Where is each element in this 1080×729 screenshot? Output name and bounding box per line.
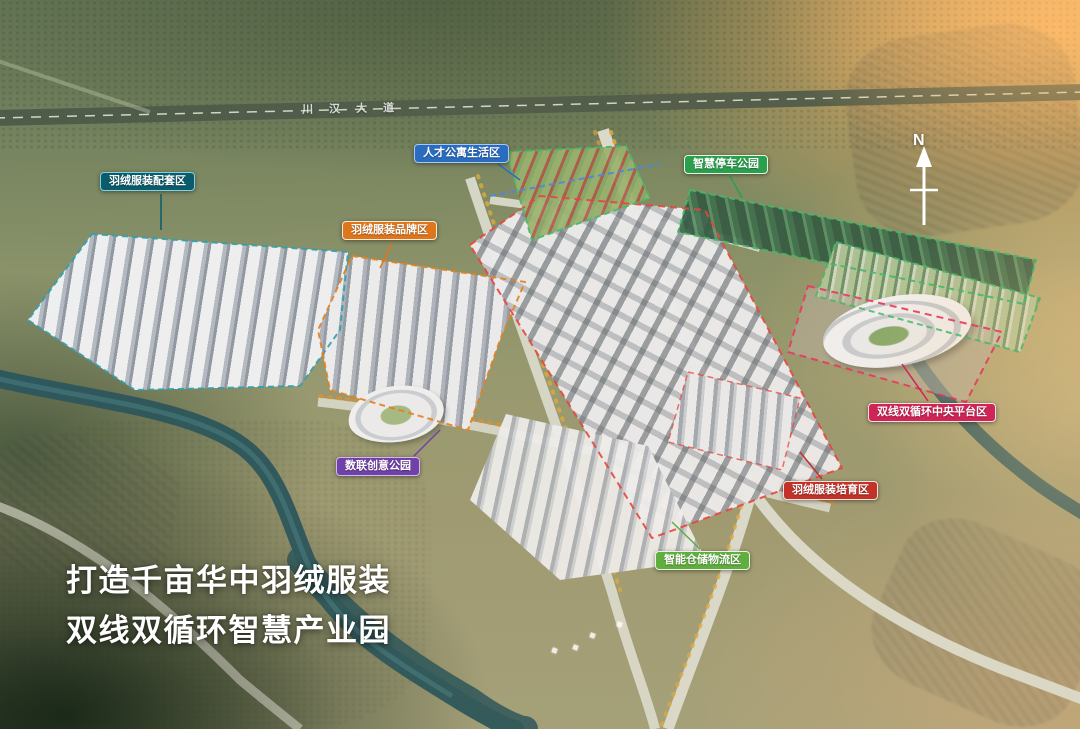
leader-platform [902,364,928,401]
zone-label-smart-parking: 智慧停车公园 [684,155,768,174]
boundary-platform [788,286,1002,402]
main-title: 打造千亩华中羽绒服装 双线双循环智慧产业园 [66,556,391,656]
boundary-right-green [816,242,1040,352]
zone-label-data-creative: 数联创意公园 [336,457,420,476]
north-arrow-icon [910,146,938,225]
title-line-1: 打造千亩华中羽绒服装 [66,556,391,606]
zone-boundaries [28,146,1040,538]
leader-creative [414,430,440,456]
title-line-2: 双线双循环智慧产业园 [66,606,391,656]
boundary-talent-blue-line [490,164,660,196]
zone-label-brand: 羽绒服装品牌区 [342,221,437,240]
leader-brand [380,243,392,268]
zone-label-central-platform: 双线双循环中央平台区 [868,403,996,422]
boundary-incubation [668,372,800,470]
zone-label-talent-life: 人才公寓生活区 [414,144,509,163]
boundary-support [28,234,348,390]
zone-label-incubation: 羽绒服装培育区 [783,481,878,500]
leader-talent [498,164,520,180]
zone-label-support: 羽绒服装配套区 [100,172,195,191]
boundary-talent [506,146,650,240]
zone-label-logistics: 智能仓储物流区 [655,551,750,570]
north-label: N [913,132,925,150]
road-label: 川汉大道 [302,99,410,117]
leader-parking [730,176,742,198]
leader-incubation [800,452,822,479]
masterplan-scene: 羽绒服装配套区 羽绒服装品牌区 人才公寓生活区 智慧停车公园 数联创意公园 双线… [0,0,1080,729]
